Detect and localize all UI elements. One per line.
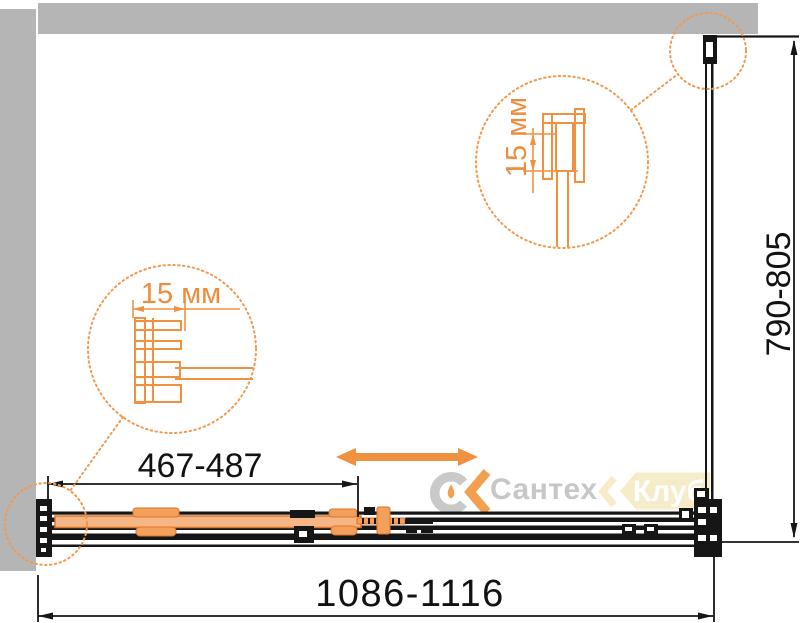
watermark-droplet-icon — [448, 485, 455, 499]
dimension-depth-label: 790-805 — [760, 232, 798, 357]
side-panel — [703, 35, 717, 502]
wall-top — [38, 3, 758, 34]
arrowhead-down-icon — [791, 523, 798, 538]
arrowhead-up-icon — [791, 40, 798, 55]
dimension-door-label: 467-487 — [138, 447, 263, 485]
slide-direction-arrow-icon — [336, 448, 478, 466]
detail-top-label: 15 мм — [501, 97, 533, 177]
arrowhead-right-icon — [698, 613, 713, 620]
watermark-logo: Сантех Клуб — [435, 472, 710, 512]
detail-left-label: 15 мм — [141, 278, 221, 310]
callout-connector-left — [70, 417, 123, 491]
drawing-canvas: Сантех Клуб — [0, 0, 800, 623]
watermark-brand-text: Сантех — [490, 473, 598, 506]
watermark-badge-chevron-icon — [603, 478, 614, 505]
enclosure-diagram: Сантех Клуб — [0, 0, 800, 623]
watermark-chevron-icon — [470, 472, 487, 512]
callout-connector-top — [631, 74, 678, 110]
arrowhead-right-icon — [342, 481, 357, 488]
arrowhead-left-icon — [38, 613, 53, 620]
dimension-width-label: 1086-1116 — [315, 573, 505, 615]
